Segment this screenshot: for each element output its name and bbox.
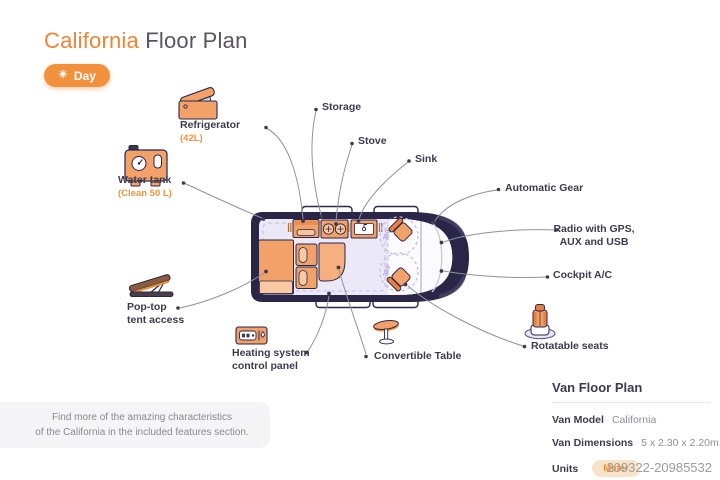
- features-note-text: Find more of the amazing characteristics…: [21, 410, 248, 440]
- label-refrigerator-capacity: (42L): [180, 133, 240, 146]
- label-automatic-gear: Automatic Gear: [505, 182, 583, 195]
- heating-panel-icon: [236, 327, 267, 344]
- van-info-heading: Van Floor Plan: [552, 380, 710, 403]
- label-radio: Radio with GPS, AUX and USB: [551, 223, 637, 248]
- label-heating-system: Heating system control panel: [232, 347, 310, 372]
- label-rotatable-seats: Rotatable seats: [531, 340, 609, 353]
- label-pop-top: Pop-top tent access: [127, 301, 184, 326]
- van-model-label: Van Model: [552, 414, 604, 426]
- label-water-tank: Water tank(Clean 50 L): [118, 174, 172, 200]
- label-refrigerator: Refrigerator(42L): [180, 119, 240, 145]
- bed: [259, 240, 294, 294]
- convertible-table-icon: [373, 319, 399, 344]
- label-convertible-table: Convertible Table: [374, 350, 461, 363]
- features-note-box: Find more of the amazing characteristics…: [0, 402, 270, 448]
- pop-top-icon: [129, 274, 173, 296]
- label-water-tank-text: Water tank: [118, 174, 171, 186]
- van-dimensions-label: Van Dimensions: [552, 437, 633, 449]
- van-model-value: California: [612, 414, 656, 426]
- label-stove: Stove: [358, 135, 387, 148]
- van-dimensions-row: Van Dimensions 5 x 2.30 x 2.20m: [552, 437, 710, 449]
- van-dimensions-value: 5 x 2.30 x 2.20m: [641, 437, 719, 449]
- bench-seat-front: [296, 267, 317, 289]
- label-water-tank-capacity: (Clean 50 L): [118, 188, 172, 201]
- table: [319, 243, 345, 281]
- kitchen-stove-unit: [321, 220, 348, 238]
- units-label: Units: [552, 463, 578, 475]
- label-cockpit-ac: Cockpit A/C: [553, 269, 612, 282]
- kitchen-fridge-unit: [293, 220, 319, 238]
- label-refrigerator-text: Refrigerator: [180, 119, 240, 131]
- label-sink: Sink: [415, 153, 437, 166]
- label-storage: Storage: [322, 101, 361, 114]
- bench-seat-rear: [296, 244, 317, 266]
- van-model-row: Van Model California: [552, 414, 710, 426]
- rotatable-seat-icon: [525, 305, 555, 339]
- kitchen-sink-unit: [351, 220, 377, 238]
- watermark-id: 209322-20985532: [606, 460, 712, 475]
- refrigerator-icon: [179, 87, 217, 119]
